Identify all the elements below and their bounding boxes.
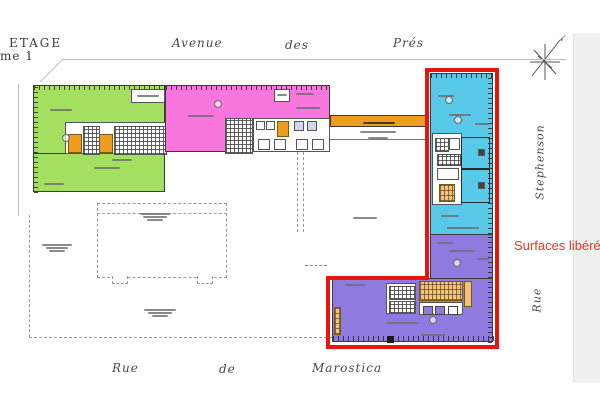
pink-label-topright xyxy=(294,92,316,96)
hall-dashed-line-1 xyxy=(297,152,298,232)
green-core xyxy=(65,122,166,154)
green-zone xyxy=(33,85,165,192)
pink-label-2 xyxy=(294,106,322,110)
etage-sub-label: me 1 xyxy=(0,49,34,63)
street-avenue-word3: Prés xyxy=(393,36,424,50)
etage-label: ETAGE xyxy=(9,36,62,50)
pink-zone xyxy=(165,85,330,152)
svg-text:↗: ↗ xyxy=(561,34,566,41)
green-stairs-grid-2 xyxy=(114,126,167,155)
pink-room-box xyxy=(274,89,290,102)
hall-dashed-line-2 xyxy=(303,152,304,232)
compass-north-icon: ↗ xyxy=(526,32,568,84)
pink-fixture-5 xyxy=(258,139,270,150)
page-edge xyxy=(573,33,600,383)
pink-label-1 xyxy=(186,114,216,118)
street-marostica-word1: Rue xyxy=(112,361,139,375)
pink-fixture-1 xyxy=(256,121,265,130)
green-stairs-grid-1 xyxy=(83,126,100,155)
parcel-label-3 xyxy=(142,308,178,318)
street-rue-right-label: Rue xyxy=(531,288,544,313)
pink-fixture-4 xyxy=(307,121,317,131)
street-avenue-word1: Avenue xyxy=(172,36,223,50)
street-stephenson-label: Stephenson xyxy=(534,124,547,200)
parcel-label-1 xyxy=(138,212,172,222)
site-dashed-left xyxy=(29,215,30,337)
pink-fixture-7 xyxy=(296,139,308,150)
green-wall-div xyxy=(34,153,65,154)
pink-symbol-circle xyxy=(214,100,222,108)
parcel-notch-2 xyxy=(197,276,213,284)
green-label-4 xyxy=(110,158,134,162)
street-avenue-word2: des xyxy=(285,38,309,52)
liberated-surfaces-outline xyxy=(324,66,502,352)
green-stair-landing-2 xyxy=(99,134,113,153)
site-boundary-left-upper xyxy=(18,84,19,216)
street-marostica-word3: Marostica xyxy=(312,361,382,375)
pink-fixture-8 xyxy=(312,139,324,150)
red-outline-polygon xyxy=(328,70,497,347)
site-boundary-corner xyxy=(38,58,64,84)
pink-fixture-3 xyxy=(294,121,304,131)
green-room-box xyxy=(131,89,165,103)
pink-fixtures-block xyxy=(253,118,330,152)
site-boundary-top xyxy=(62,59,566,60)
green-stair-landing-1 xyxy=(68,134,82,153)
green-label-2 xyxy=(92,166,122,170)
surfaces-liberees-label: Surfaces libérées xyxy=(514,238,600,253)
pink-fixture-2 xyxy=(266,121,275,130)
pink-stairs-grid xyxy=(225,118,253,154)
parcel-label-2 xyxy=(40,243,74,253)
green-symbol-circle xyxy=(62,134,70,142)
green-left-wall-hatch xyxy=(34,86,38,193)
pink-stair-landing xyxy=(277,121,289,137)
green-label-1 xyxy=(48,108,74,112)
pink-top-wall-hatch xyxy=(166,86,331,90)
parcel-notch-1 xyxy=(112,276,128,284)
site-dashed-bottom xyxy=(29,337,332,338)
green-label-3 xyxy=(42,182,66,186)
floorplan-page: ETAGE me 1 Avenue des Prés Rue de Marost… xyxy=(0,0,600,420)
pink-fixture-6 xyxy=(274,139,286,150)
street-marostica-word2: de xyxy=(219,362,236,376)
